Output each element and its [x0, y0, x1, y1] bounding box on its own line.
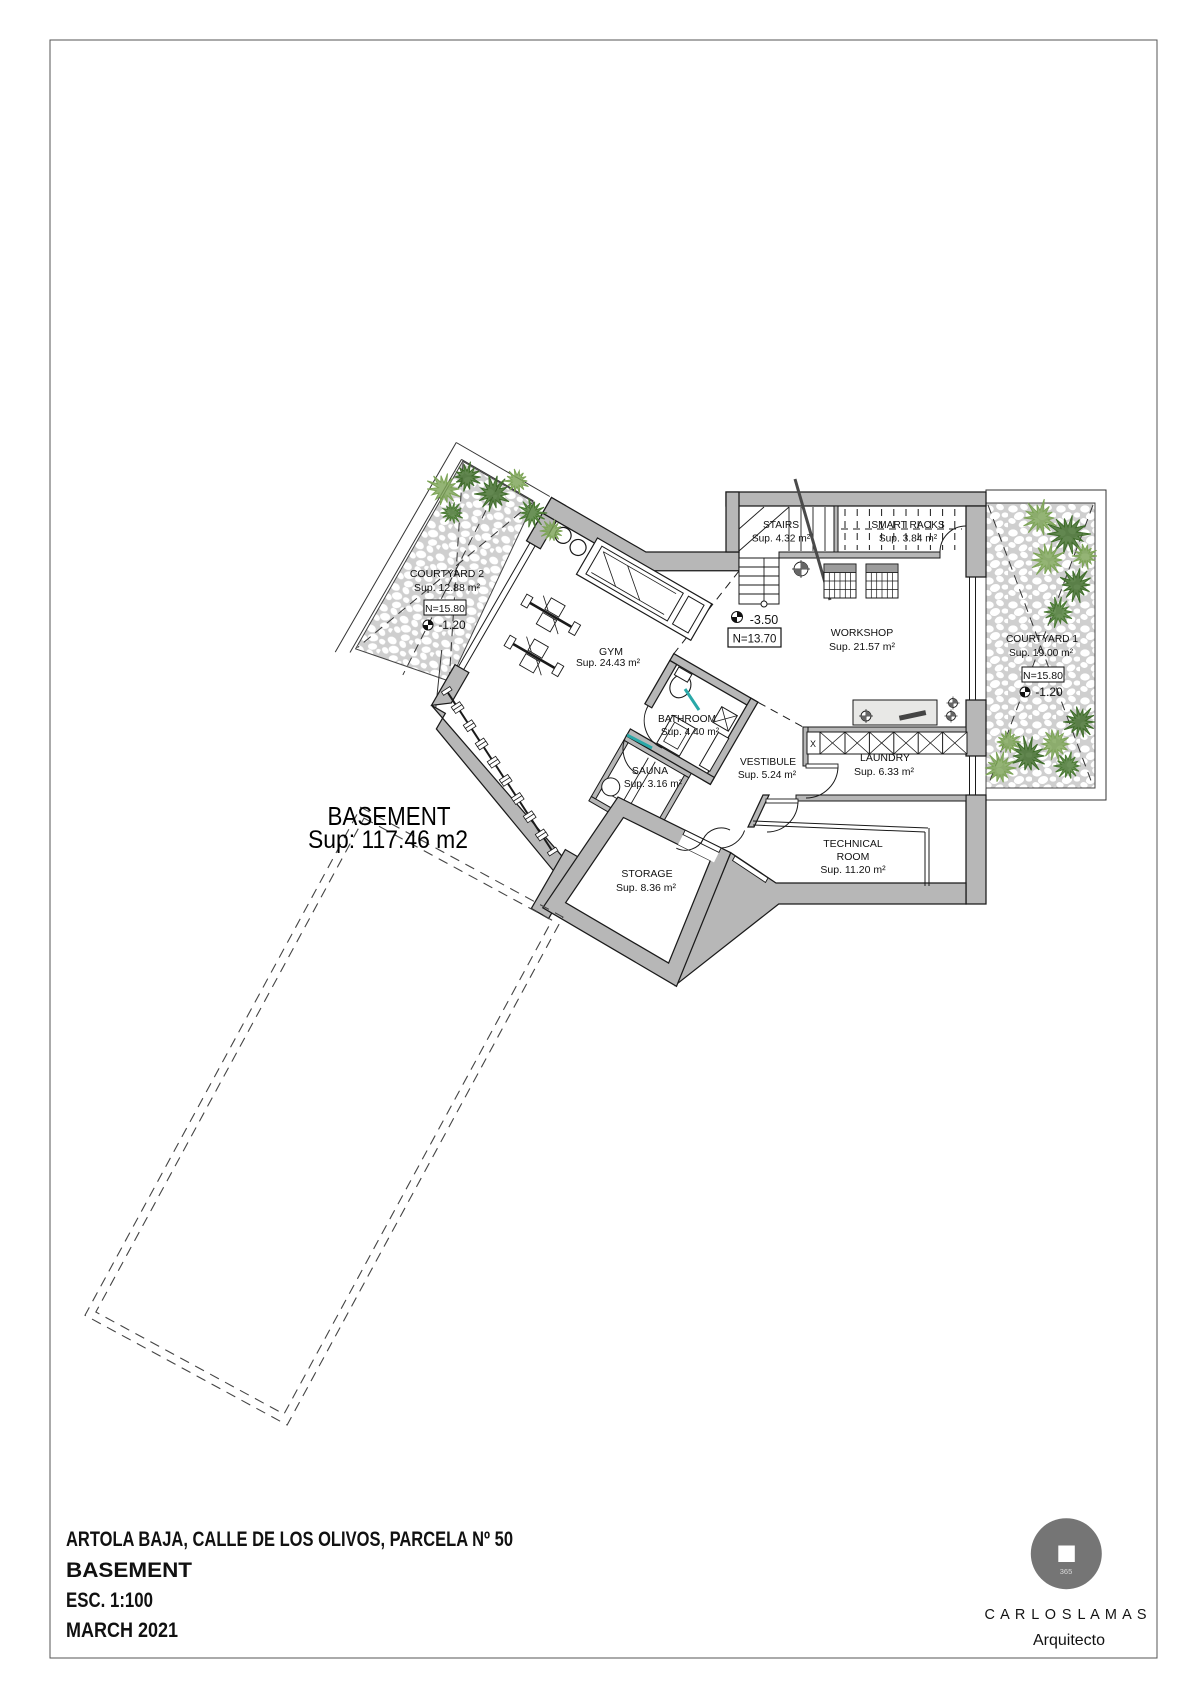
svg-text:Sup. 4.32 m²: Sup. 4.32 m² [752, 534, 811, 545]
svg-text:Sup. 5.24 m²: Sup. 5.24 m² [738, 770, 797, 781]
svg-text:-1.20: -1.20 [438, 618, 466, 632]
svg-text:WORKSHOP: WORKSHOP [831, 627, 893, 639]
svg-text:STAIRS: STAIRS [763, 520, 799, 531]
svg-text:C A R L O S L A M A S: C A R L O S L A M A S [985, 1606, 1148, 1623]
svg-text:COURTYARD 2: COURTYARD 2 [410, 568, 484, 580]
svg-text:N=15.80: N=15.80 [425, 603, 465, 615]
svg-text:Sup. 3.16 m²: Sup. 3.16 m² [624, 779, 683, 790]
svg-text:Sup. 21.57 m²: Sup. 21.57 m² [829, 641, 895, 653]
svg-text:Sup. 3.84 m²: Sup. 3.84 m² [879, 534, 938, 545]
svg-text:TECHNICAL: TECHNICAL [823, 838, 883, 850]
svg-text:Sup: 117.46 m2: Sup: 117.46 m2 [308, 826, 468, 854]
svg-text:GYM: GYM [599, 646, 623, 658]
svg-text:Sup. 8.36 m²: Sup. 8.36 m² [616, 882, 677, 894]
svg-text:BASEMENT: BASEMENT [66, 1559, 192, 1582]
svg-text:365: 365 [1060, 1567, 1073, 1576]
svg-text:SMART RACKS: SMART RACKS [871, 520, 944, 531]
svg-text:STORAGE: STORAGE [621, 868, 672, 880]
svg-text:Sup. 4.40 m²: Sup. 4.40 m² [661, 727, 720, 738]
svg-text:COURTYARD 1: COURTYARD 1 [1006, 634, 1078, 645]
svg-text:ESC. 1:100: ESC. 1:100 [66, 1589, 153, 1612]
svg-text:SAUNA: SAUNA [632, 765, 668, 777]
svg-text:Sup. 6.33 m²: Sup. 6.33 m² [854, 766, 915, 778]
svg-text:Sup. 24.43 m²: Sup. 24.43 m² [576, 658, 641, 669]
svg-text:LAUNDRY: LAUNDRY [860, 752, 910, 764]
svg-text:BATHROOM: BATHROOM [658, 714, 716, 725]
svg-text:-3.50: -3.50 [750, 613, 779, 627]
svg-text:ROOM: ROOM [837, 851, 870, 863]
svg-text:X: X [810, 739, 816, 749]
svg-text:N=13.70: N=13.70 [733, 634, 777, 646]
svg-text:ARTOLA BAJA, CALLE DE LOS OLIV: ARTOLA BAJA, CALLE DE LOS OLIVOS, PARCEL… [66, 1528, 513, 1551]
svg-text:Arquitecto: Arquitecto [1033, 1632, 1105, 1649]
svg-text:Sup. 11.20 m²: Sup. 11.20 m² [820, 864, 886, 876]
svg-text:N=15.80: N=15.80 [1023, 670, 1063, 682]
svg-text:-1.20: -1.20 [1035, 685, 1063, 699]
svg-text:VESTIBULE: VESTIBULE [740, 757, 796, 768]
svg-text:Sup. 19.00 m²: Sup. 19.00 m² [1009, 648, 1074, 659]
svg-text:MARCH 2021: MARCH 2021 [66, 1619, 178, 1642]
svg-text:Sup. 12.88 m²: Sup. 12.88 m² [414, 582, 480, 594]
